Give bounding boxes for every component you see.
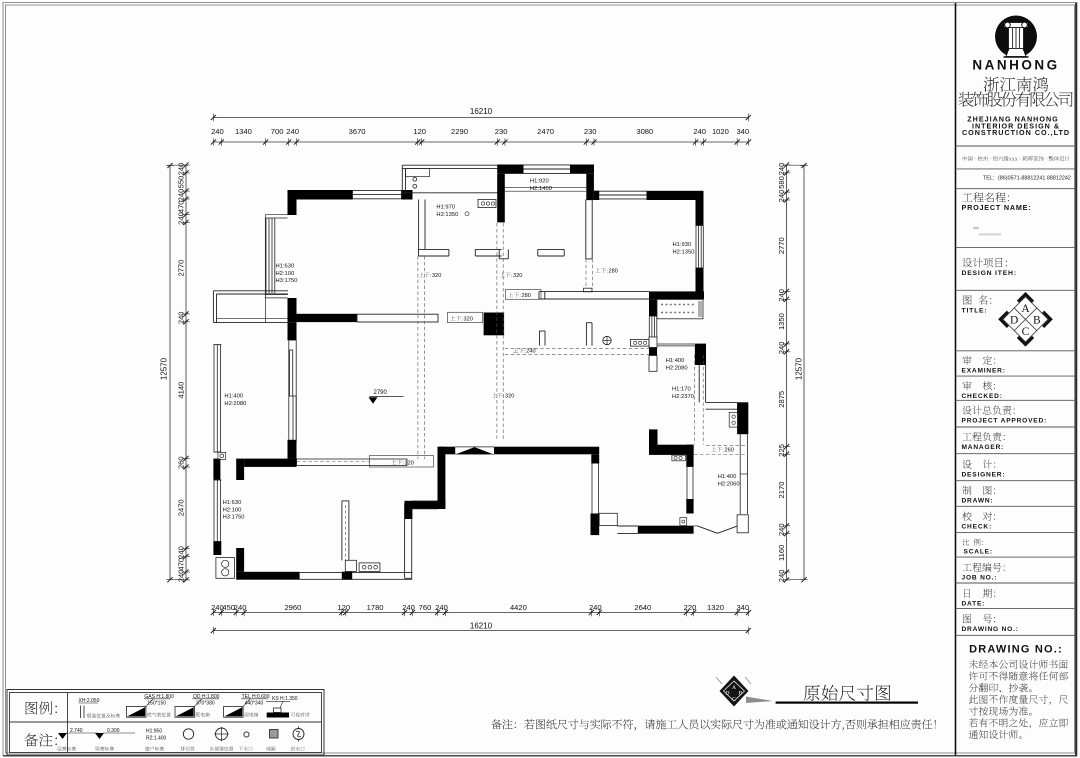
svg-text:H2:2370: H2:2370: [672, 394, 694, 400]
svg-text:TITLE:: TITLE:: [962, 308, 988, 315]
svg-text:H1:930: H1:930: [673, 242, 692, 248]
svg-text:H1:400: H1:400: [718, 474, 737, 480]
svg-text:240: 240: [234, 603, 247, 612]
svg-text:PROJECT NAME:: PROJECT NAME:: [962, 203, 1032, 212]
svg-text:EXAMINER:: EXAMINER:: [962, 368, 1006, 375]
svg-text:240: 240: [177, 189, 186, 202]
svg-text:SCALE:: SCALE:: [964, 549, 993, 556]
svg-text:1350: 1350: [777, 313, 786, 330]
svg-text:1780: 1780: [367, 603, 384, 612]
svg-text:240: 240: [777, 523, 786, 536]
svg-text:C: C: [732, 697, 736, 703]
svg-text:3080: 3080: [636, 127, 653, 136]
svg-text:240: 240: [402, 603, 415, 612]
svg-text:280: 280: [522, 293, 531, 299]
svg-text:150*150: 150*150: [147, 701, 166, 707]
svg-text:12570: 12570: [795, 357, 804, 380]
svg-text:16210: 16210: [470, 107, 493, 116]
svg-text:760: 760: [419, 603, 432, 612]
svg-text:230: 230: [584, 127, 597, 136]
svg-text:NANHONG: NANHONG: [972, 58, 1059, 73]
svg-text:H2:100: H2:100: [276, 271, 295, 277]
svg-text:320: 320: [405, 460, 414, 466]
svg-text:260: 260: [725, 448, 734, 454]
svg-text:320: 320: [432, 273, 441, 279]
svg-text:470: 470: [177, 558, 186, 571]
svg-text:2770: 2770: [777, 237, 786, 254]
svg-text:240: 240: [777, 570, 786, 583]
svg-text:D: D: [1010, 314, 1018, 326]
svg-text:240: 240: [177, 163, 186, 176]
svg-text:A: A: [732, 685, 736, 691]
svg-text:1320: 1320: [707, 603, 724, 612]
svg-text:PROJECT APPROVED:: PROJECT APPROVED:: [962, 418, 1048, 425]
svg-text:H1:400: H1:400: [666, 358, 685, 364]
svg-text:120: 120: [413, 127, 426, 136]
svg-text:240: 240: [435, 603, 448, 612]
svg-text:TEL:: TEL:: [983, 175, 994, 181]
svg-text:CONSTRUCTION CO.,LTD: CONSTRUCTION CO.,LTD: [962, 128, 1070, 137]
svg-text:240: 240: [693, 127, 706, 136]
svg-text:DESIGNER:: DESIGNER:: [962, 472, 1006, 479]
svg-text:H1:170: H1:170: [672, 387, 691, 393]
svg-text:2290: 2290: [451, 127, 468, 136]
svg-text:DRAWN:: DRAWN:: [962, 498, 994, 505]
svg-text:2960: 2960: [284, 603, 301, 612]
svg-text:H1:400: H1:400: [224, 394, 243, 400]
svg-text:12570: 12570: [160, 357, 169, 380]
svg-text:DESIGN ITEH:: DESIGN ITEH:: [962, 270, 1017, 277]
svg-text:2470: 2470: [537, 127, 554, 136]
svg-text:550: 550: [177, 176, 186, 189]
svg-text:DRAWING NO.:: DRAWING NO.:: [969, 644, 1063, 656]
svg-text:2790: 2790: [374, 390, 388, 396]
svg-text:1160: 1160: [777, 545, 786, 561]
svg-text:(86)0571-88812241 88812242: (86)0571-88812241 88812242: [998, 175, 1071, 181]
svg-text:240: 240: [526, 349, 535, 355]
svg-text:340: 340: [736, 127, 749, 136]
svg-text:240: 240: [177, 311, 186, 324]
svg-text:DATE:: DATE:: [962, 601, 986, 608]
svg-text:220: 220: [684, 603, 697, 612]
svg-text:DRAWING NO.:: DRAWING NO.:: [962, 626, 1019, 633]
svg-text:R2:1.400: R2:1.400: [146, 736, 167, 742]
svg-text:B: B: [1033, 314, 1041, 326]
svg-text:320: 320: [505, 394, 514, 400]
svg-text:340: 340: [736, 603, 749, 612]
svg-text:240: 240: [177, 212, 186, 225]
svg-text:2470: 2470: [177, 499, 186, 516]
svg-text:H2:2080: H2:2080: [224, 401, 246, 407]
svg-text:225: 225: [777, 444, 786, 457]
svg-text:440*340: 440*340: [245, 701, 264, 707]
svg-text:4420: 4420: [510, 603, 527, 612]
svg-text:240: 240: [777, 289, 786, 302]
svg-text:H1:920: H1:920: [530, 179, 549, 185]
svg-text:240: 240: [777, 190, 786, 203]
svg-text:320: 320: [513, 273, 522, 279]
svg-text:H2:1350: H2:1350: [673, 250, 695, 256]
svg-text:2770: 2770: [177, 260, 186, 277]
svg-text:2170: 2170: [777, 482, 786, 499]
svg-text:240: 240: [177, 546, 186, 559]
svg-text:B: B: [739, 691, 743, 697]
svg-text:230: 230: [495, 127, 508, 136]
svg-text:H3:1750: H3:1750: [223, 515, 245, 521]
svg-text:470: 470: [177, 200, 186, 213]
svg-text:320: 320: [464, 316, 473, 322]
svg-text:580: 580: [777, 176, 786, 189]
svg-text:1340: 1340: [235, 127, 252, 136]
svg-text:260: 260: [177, 456, 186, 469]
svg-text:CHECK:: CHECK:: [962, 524, 992, 531]
svg-text:CHECKED:: CHECKED:: [962, 393, 1003, 400]
svg-text:240: 240: [589, 603, 602, 612]
svg-text:H3:1750: H3:1750: [276, 278, 298, 284]
svg-text:120: 120: [337, 603, 350, 612]
svg-text:H2:1450: H2:1450: [530, 186, 552, 192]
svg-text:D: D: [726, 691, 730, 697]
svg-text:H2:1350: H2:1350: [436, 212, 458, 218]
svg-text:4140: 4140: [177, 382, 186, 399]
svg-text:JOB NO.:: JOB NO.:: [962, 575, 998, 582]
svg-text:2875: 2875: [777, 391, 786, 408]
svg-text:240: 240: [286, 127, 299, 136]
svg-text:370*380: 370*380: [196, 701, 215, 707]
svg-text:A: A: [1021, 303, 1030, 315]
svg-text:H2:2060: H2:2060: [718, 482, 740, 488]
svg-text:2640: 2640: [634, 603, 651, 612]
svg-text:240: 240: [211, 127, 224, 136]
svg-text:H1:950: H1:950: [146, 729, 162, 735]
svg-text:H2:100: H2:100: [223, 507, 242, 513]
svg-text:240: 240: [777, 342, 786, 355]
svg-text:3670: 3670: [349, 127, 366, 136]
svg-text:MANAGER:: MANAGER:: [962, 444, 1005, 451]
svg-text:1020: 1020: [712, 127, 729, 136]
svg-text:H2:2080: H2:2080: [666, 366, 688, 372]
svg-text:C: C: [1022, 326, 1030, 338]
svg-text:16210: 16210: [470, 621, 493, 630]
svg-text:240: 240: [777, 163, 786, 176]
svg-text:H1:630: H1:630: [276, 264, 295, 270]
svg-text:240: 240: [177, 570, 186, 583]
svg-text:280: 280: [609, 269, 618, 275]
svg-text:H1:630: H1:630: [223, 500, 242, 506]
svg-text:H1:970: H1:970: [436, 205, 455, 211]
svg-text:700: 700: [271, 127, 284, 136]
